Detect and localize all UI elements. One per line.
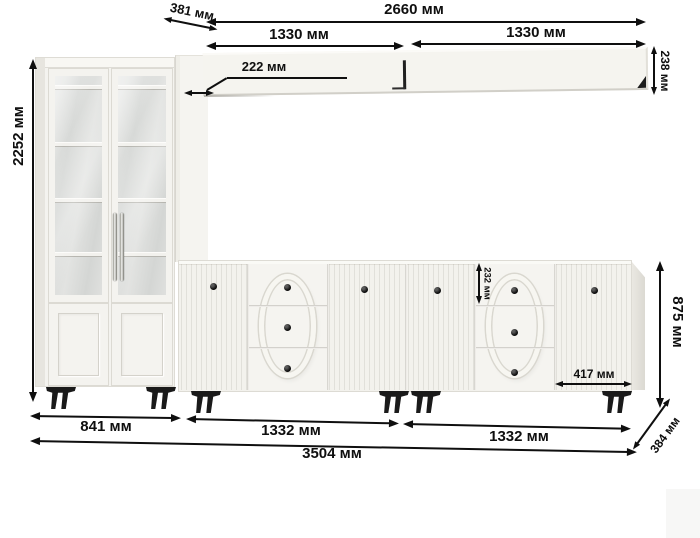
door-knob xyxy=(210,283,217,290)
dim-shelf-right-label: 1330 мм xyxy=(476,25,596,41)
shelf-underside-shadow xyxy=(204,95,274,97)
glass-panel xyxy=(118,76,166,295)
drawer-knob xyxy=(511,369,518,376)
dim-right-door-arrow xyxy=(555,379,632,389)
drawer-knob xyxy=(511,287,518,294)
sideboard-leg xyxy=(379,391,409,413)
background-artifact xyxy=(666,489,700,538)
dim-shelf-depth-label: 222 мм xyxy=(204,59,324,75)
dim-total-height-label: 2252 мм xyxy=(11,76,27,196)
dim-sideboard-left-width-label: 1332 мм xyxy=(231,423,351,439)
interior-shelf xyxy=(55,85,102,90)
cabinet-lower-door-right xyxy=(111,303,173,386)
shelf-divider xyxy=(403,60,406,89)
interior-shelf xyxy=(118,85,166,90)
dim-shelf-left-label: 1330 мм xyxy=(239,27,359,43)
sideboard-door xyxy=(408,264,474,390)
interior-shelf xyxy=(55,198,102,203)
panel-seam xyxy=(247,264,249,390)
dim-shelf-height-label: 238 мм xyxy=(657,31,673,111)
drawer-seam xyxy=(476,347,554,349)
display-cabinet xyxy=(35,57,175,387)
shelf-corner-shadow xyxy=(637,76,646,88)
dim-cabinet-width-label: 841 мм xyxy=(46,419,166,435)
interior-shelf xyxy=(55,252,102,257)
dim-sideboard-right-width-label: 1332 мм xyxy=(459,429,579,445)
interior-shelf xyxy=(118,252,166,257)
sideboard-unit-left xyxy=(179,261,406,391)
interior-shelf xyxy=(118,198,166,203)
dim-shelf-depth-leader xyxy=(227,77,347,79)
dim-total-width-label: 3504 мм xyxy=(272,446,392,462)
furniture-dimension-diagram: 2252 мм 381 мм 2660 мм 1330 мм 1330 мм 2… xyxy=(0,0,700,538)
door-knob xyxy=(434,287,441,294)
interior-shelf xyxy=(55,142,102,147)
cabinet-cornice xyxy=(45,58,174,68)
glass-panel xyxy=(55,76,102,295)
sideboard-door xyxy=(329,264,404,390)
drawer-knob xyxy=(284,324,291,331)
door-handle xyxy=(120,213,124,281)
dim-sideboard-height-label: 875 мм xyxy=(669,272,685,372)
unit-junction-seam xyxy=(405,264,407,390)
door-knob xyxy=(361,286,368,293)
door-knob xyxy=(591,287,598,294)
dim-sideboard-height-arrow xyxy=(655,261,665,408)
cabinet-lower-door-left xyxy=(48,303,109,386)
cabinet-glass-door-left xyxy=(48,68,109,303)
drawer-knob xyxy=(284,365,291,372)
dim-drawer-height-label: 232 мм xyxy=(482,256,493,312)
drawer-knob xyxy=(284,284,291,291)
sideboard-leg xyxy=(602,391,632,413)
sideboard-leg xyxy=(411,391,441,413)
dim-total-height-arrow xyxy=(28,59,38,402)
drawer-seam xyxy=(249,305,327,307)
drawer-knob xyxy=(511,329,518,336)
dim-shelf-total-label: 2660 мм xyxy=(354,2,474,18)
sideboard-leg xyxy=(191,391,221,413)
door-handle xyxy=(113,213,117,281)
interior-shelf xyxy=(118,142,166,147)
cabinet-leg-left xyxy=(46,387,76,409)
drawer-seam xyxy=(249,347,327,349)
cabinet-leg-right xyxy=(146,387,176,409)
dim-shelf-depth-arrow xyxy=(184,88,214,98)
